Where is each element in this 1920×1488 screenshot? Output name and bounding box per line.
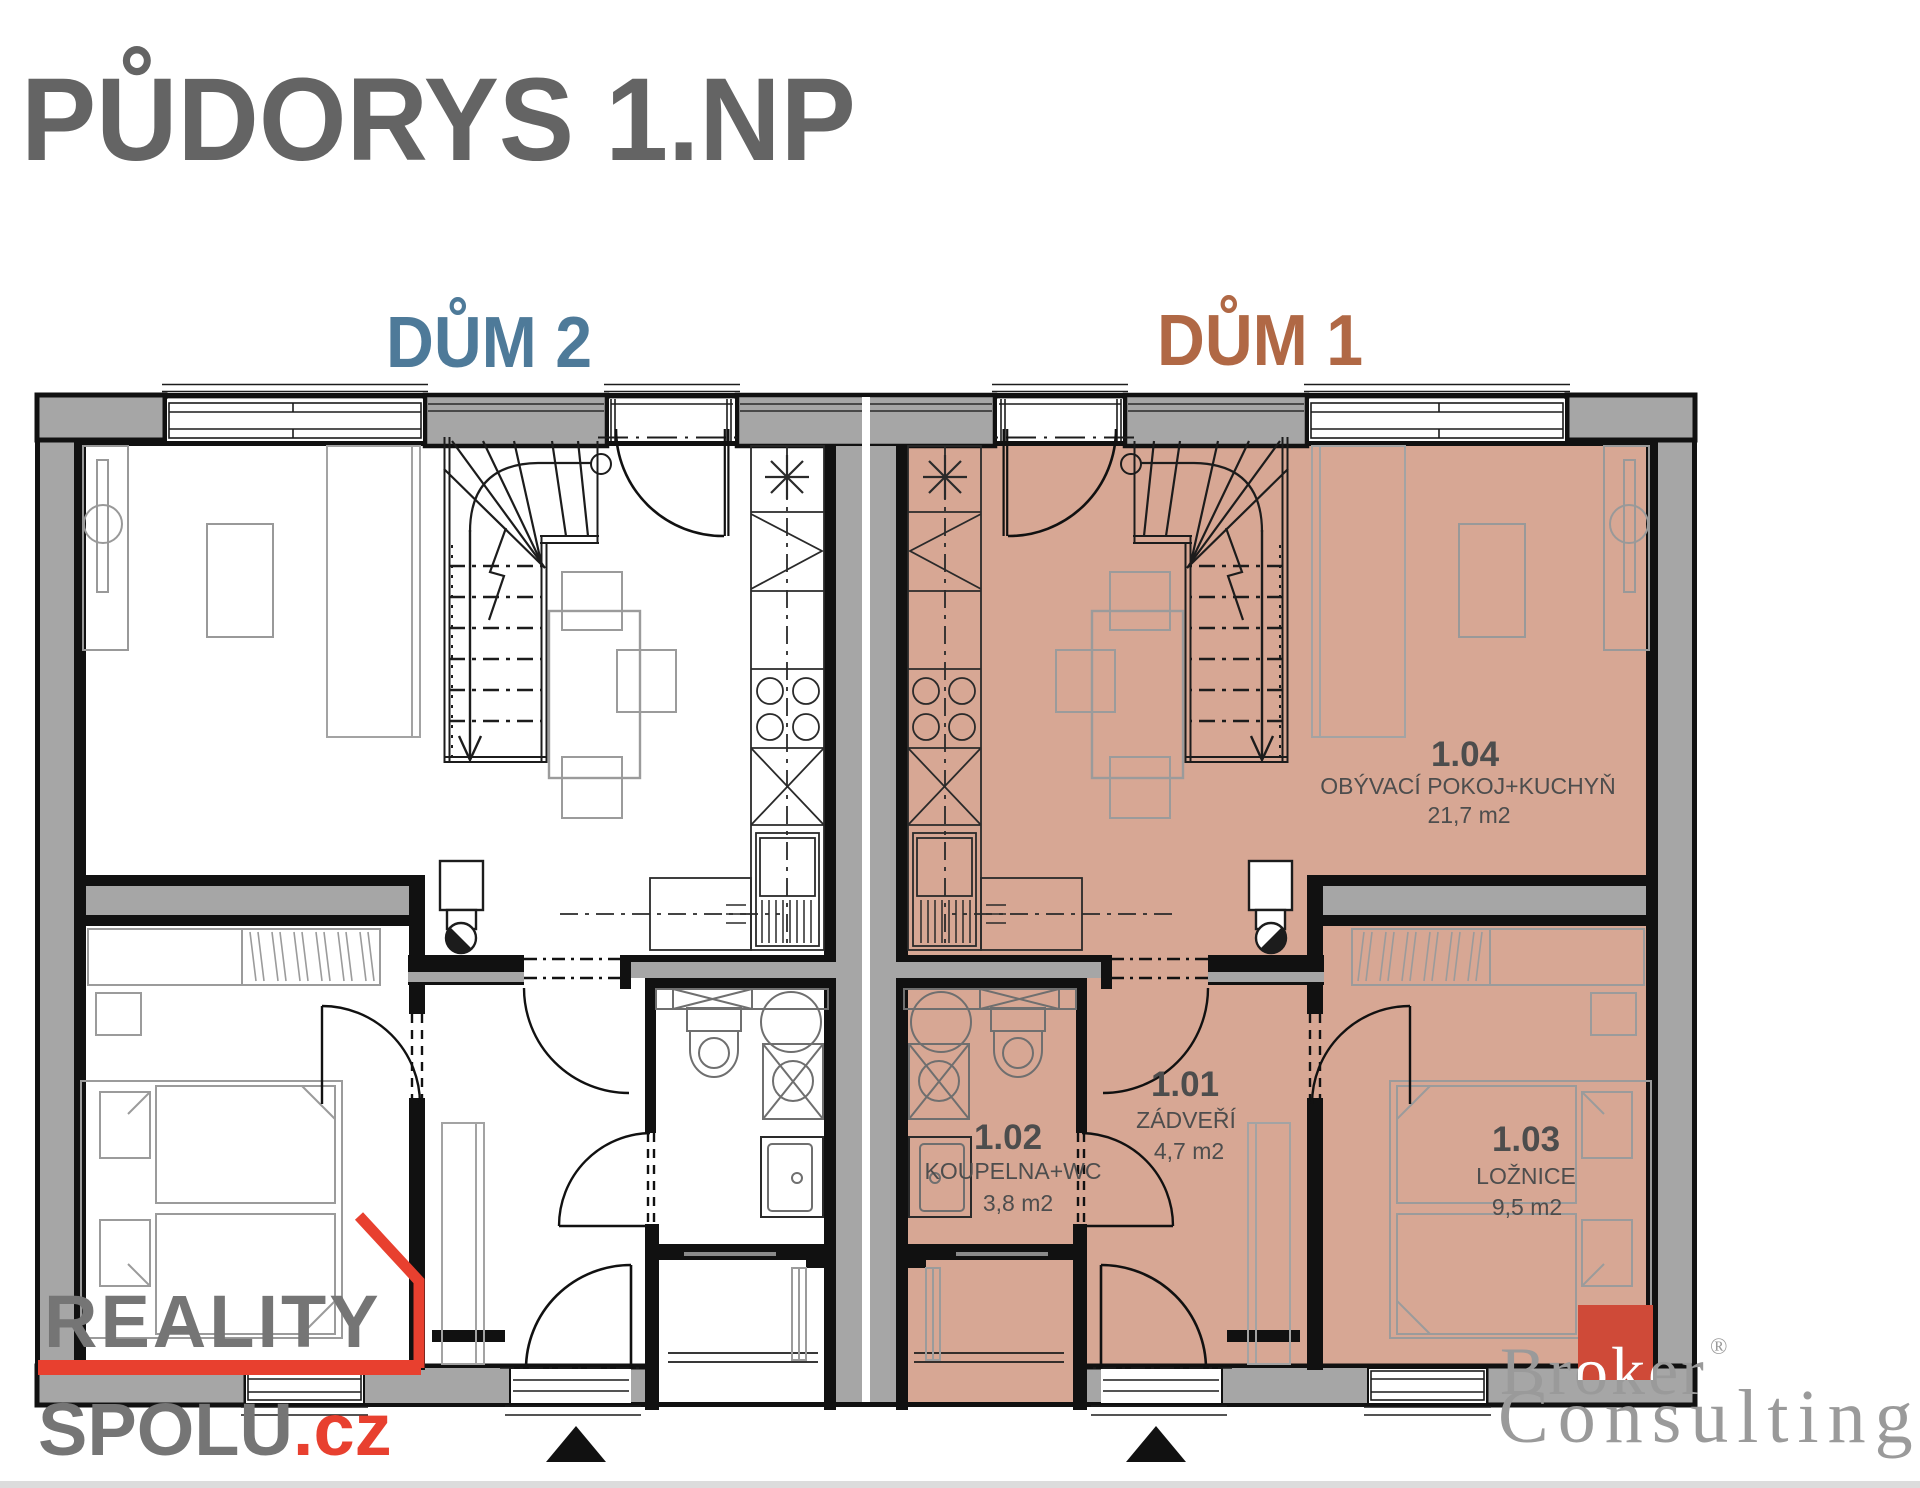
svg-text:®: ®: [1710, 1334, 1727, 1359]
svg-text:REALITY: REALITY: [44, 1280, 382, 1363]
svg-text:1.04: 1.04: [1431, 735, 1500, 774]
svg-text:9,5 m2: 9,5 m2: [1492, 1194, 1562, 1220]
svg-text:1.01: 1.01: [1151, 1065, 1219, 1104]
svg-text:ZÁDVEŘÍ: ZÁDVEŘÍ: [1136, 1107, 1236, 1133]
svg-text:1.02: 1.02: [974, 1118, 1042, 1157]
svg-text:1.03: 1.03: [1492, 1120, 1560, 1159]
svg-text:LOŽNICE: LOŽNICE: [1476, 1163, 1576, 1189]
svg-text:DŮM 2: DŮM 2: [386, 297, 592, 382]
svg-text:DŮM 1: DŮM 1: [1157, 295, 1363, 380]
svg-text:3,8 m2: 3,8 m2: [983, 1190, 1053, 1216]
svg-text:PŮDORYS 1.NP: PŮDORYS 1.NP: [21, 45, 856, 185]
svg-text:SPOLU.cz: SPOLU.cz: [38, 1388, 392, 1471]
svg-text:Consulting: Consulting: [1498, 1375, 1920, 1459]
svg-text:KOUPELNA+WC: KOUPELNA+WC: [924, 1158, 1101, 1184]
svg-text:4,7 m2: 4,7 m2: [1154, 1138, 1224, 1164]
svg-text:21,7 m2: 21,7 m2: [1427, 802, 1510, 828]
svg-text:OBÝVACÍ POKOJ+KUCHYŇ: OBÝVACÍ POKOJ+KUCHYŇ: [1320, 773, 1615, 799]
